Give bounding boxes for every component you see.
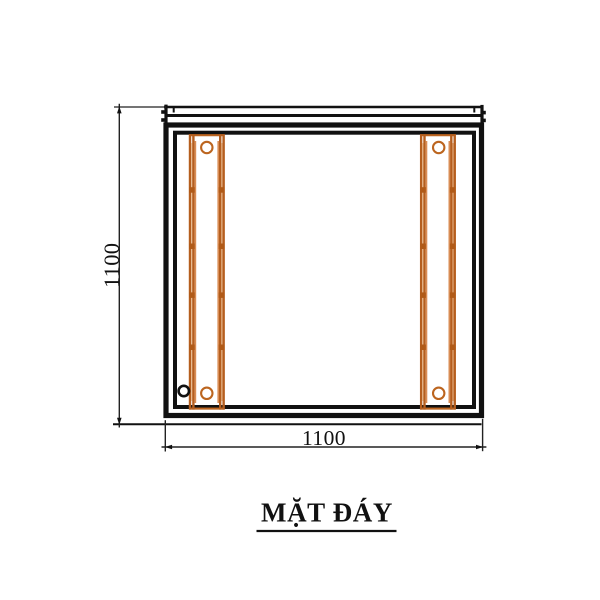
svg-text:MẶT ĐÁY: MẶT ĐÁY bbox=[261, 498, 393, 528]
svg-text:1100: 1100 bbox=[302, 426, 346, 450]
svg-text:1100: 1100 bbox=[99, 243, 124, 288]
